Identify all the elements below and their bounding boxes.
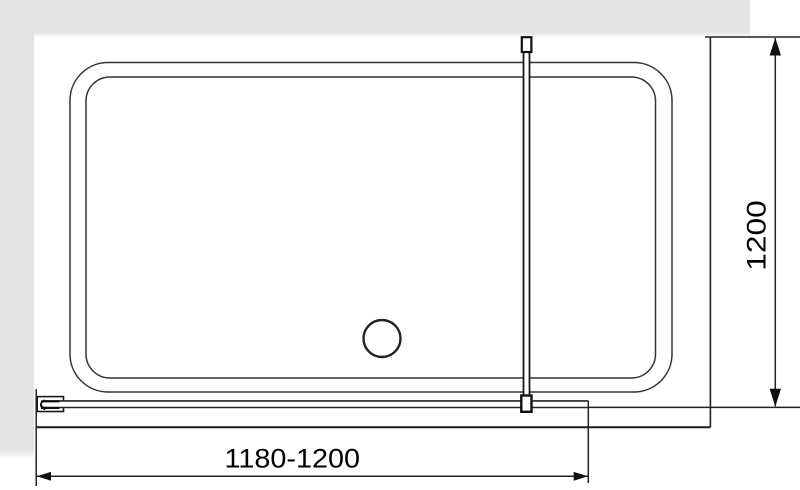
svg-text:1200: 1200 xyxy=(742,200,772,271)
svg-text:1180-1200: 1180-1200 xyxy=(225,444,361,474)
